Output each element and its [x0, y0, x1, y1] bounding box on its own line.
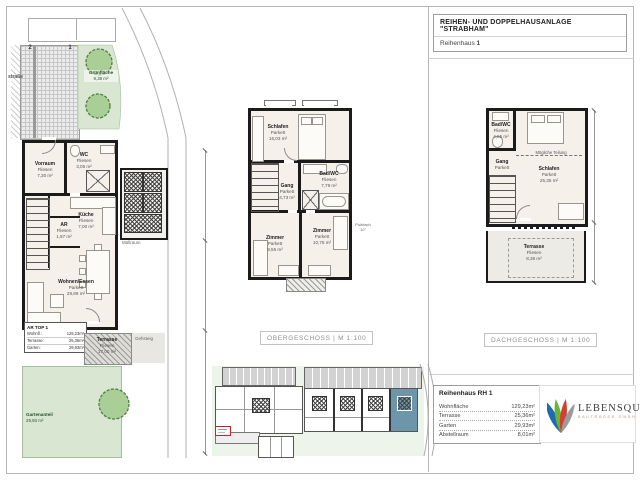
info-label: Abstellraum — [439, 432, 469, 438]
info-label: Garten — [439, 423, 456, 429]
info-label: Terrasse — [439, 413, 460, 419]
sheet-subtitle: Reihenhaus 1 — [434, 37, 626, 51]
company-logo: LEBENSQUELL BAUTRÄGER GMBH — [539, 385, 636, 443]
logo-drop-icon — [547, 393, 575, 435]
info-row: Abstellraum 8,01m² — [439, 431, 535, 440]
plan-sheet: 2 1 Grünfläche 9,38 m² straße — [0, 0, 640, 480]
info-value: 8,01m² — [518, 432, 535, 438]
logo-subtitle: BAUTRÄGER GMBH — [578, 415, 640, 419]
info-value: 129,23m² — [511, 404, 535, 410]
info-value: 29,93m² — [514, 423, 535, 429]
info-row: Terrasse 25,36m² — [439, 412, 535, 422]
sheet-header: REIHEN- UND DOPPELHAUSANLAGE "STRABHAM" … — [433, 14, 627, 52]
unit-info-table: Reihenhaus RH 1 Wohnfläche 129,23m² Terr… — [433, 385, 541, 444]
title-block: REIHEN- UND DOPPELHAUSANLAGE "STRABHAM" … — [0, 0, 640, 480]
logo-text: LEBENSQUELL BAUTRÄGER GMBH — [578, 403, 640, 419]
info-value: 25,36m² — [514, 413, 535, 419]
project-title: REIHEN- UND DOPPELHAUSANLAGE "STRABHAM" — [434, 15, 626, 37]
subtitle-number: 1 — [477, 40, 481, 47]
info-label: Wohnfläche — [439, 404, 468, 410]
info-row: Garten 29,93m² — [439, 421, 535, 431]
info-row: Wohnfläche 129,23m² — [439, 402, 535, 412]
logo-name: LEBENSQUELL — [578, 403, 640, 414]
subtitle-text: Reihenhaus — [440, 40, 475, 47]
info-title: Reihenhaus RH 1 — [439, 390, 535, 397]
